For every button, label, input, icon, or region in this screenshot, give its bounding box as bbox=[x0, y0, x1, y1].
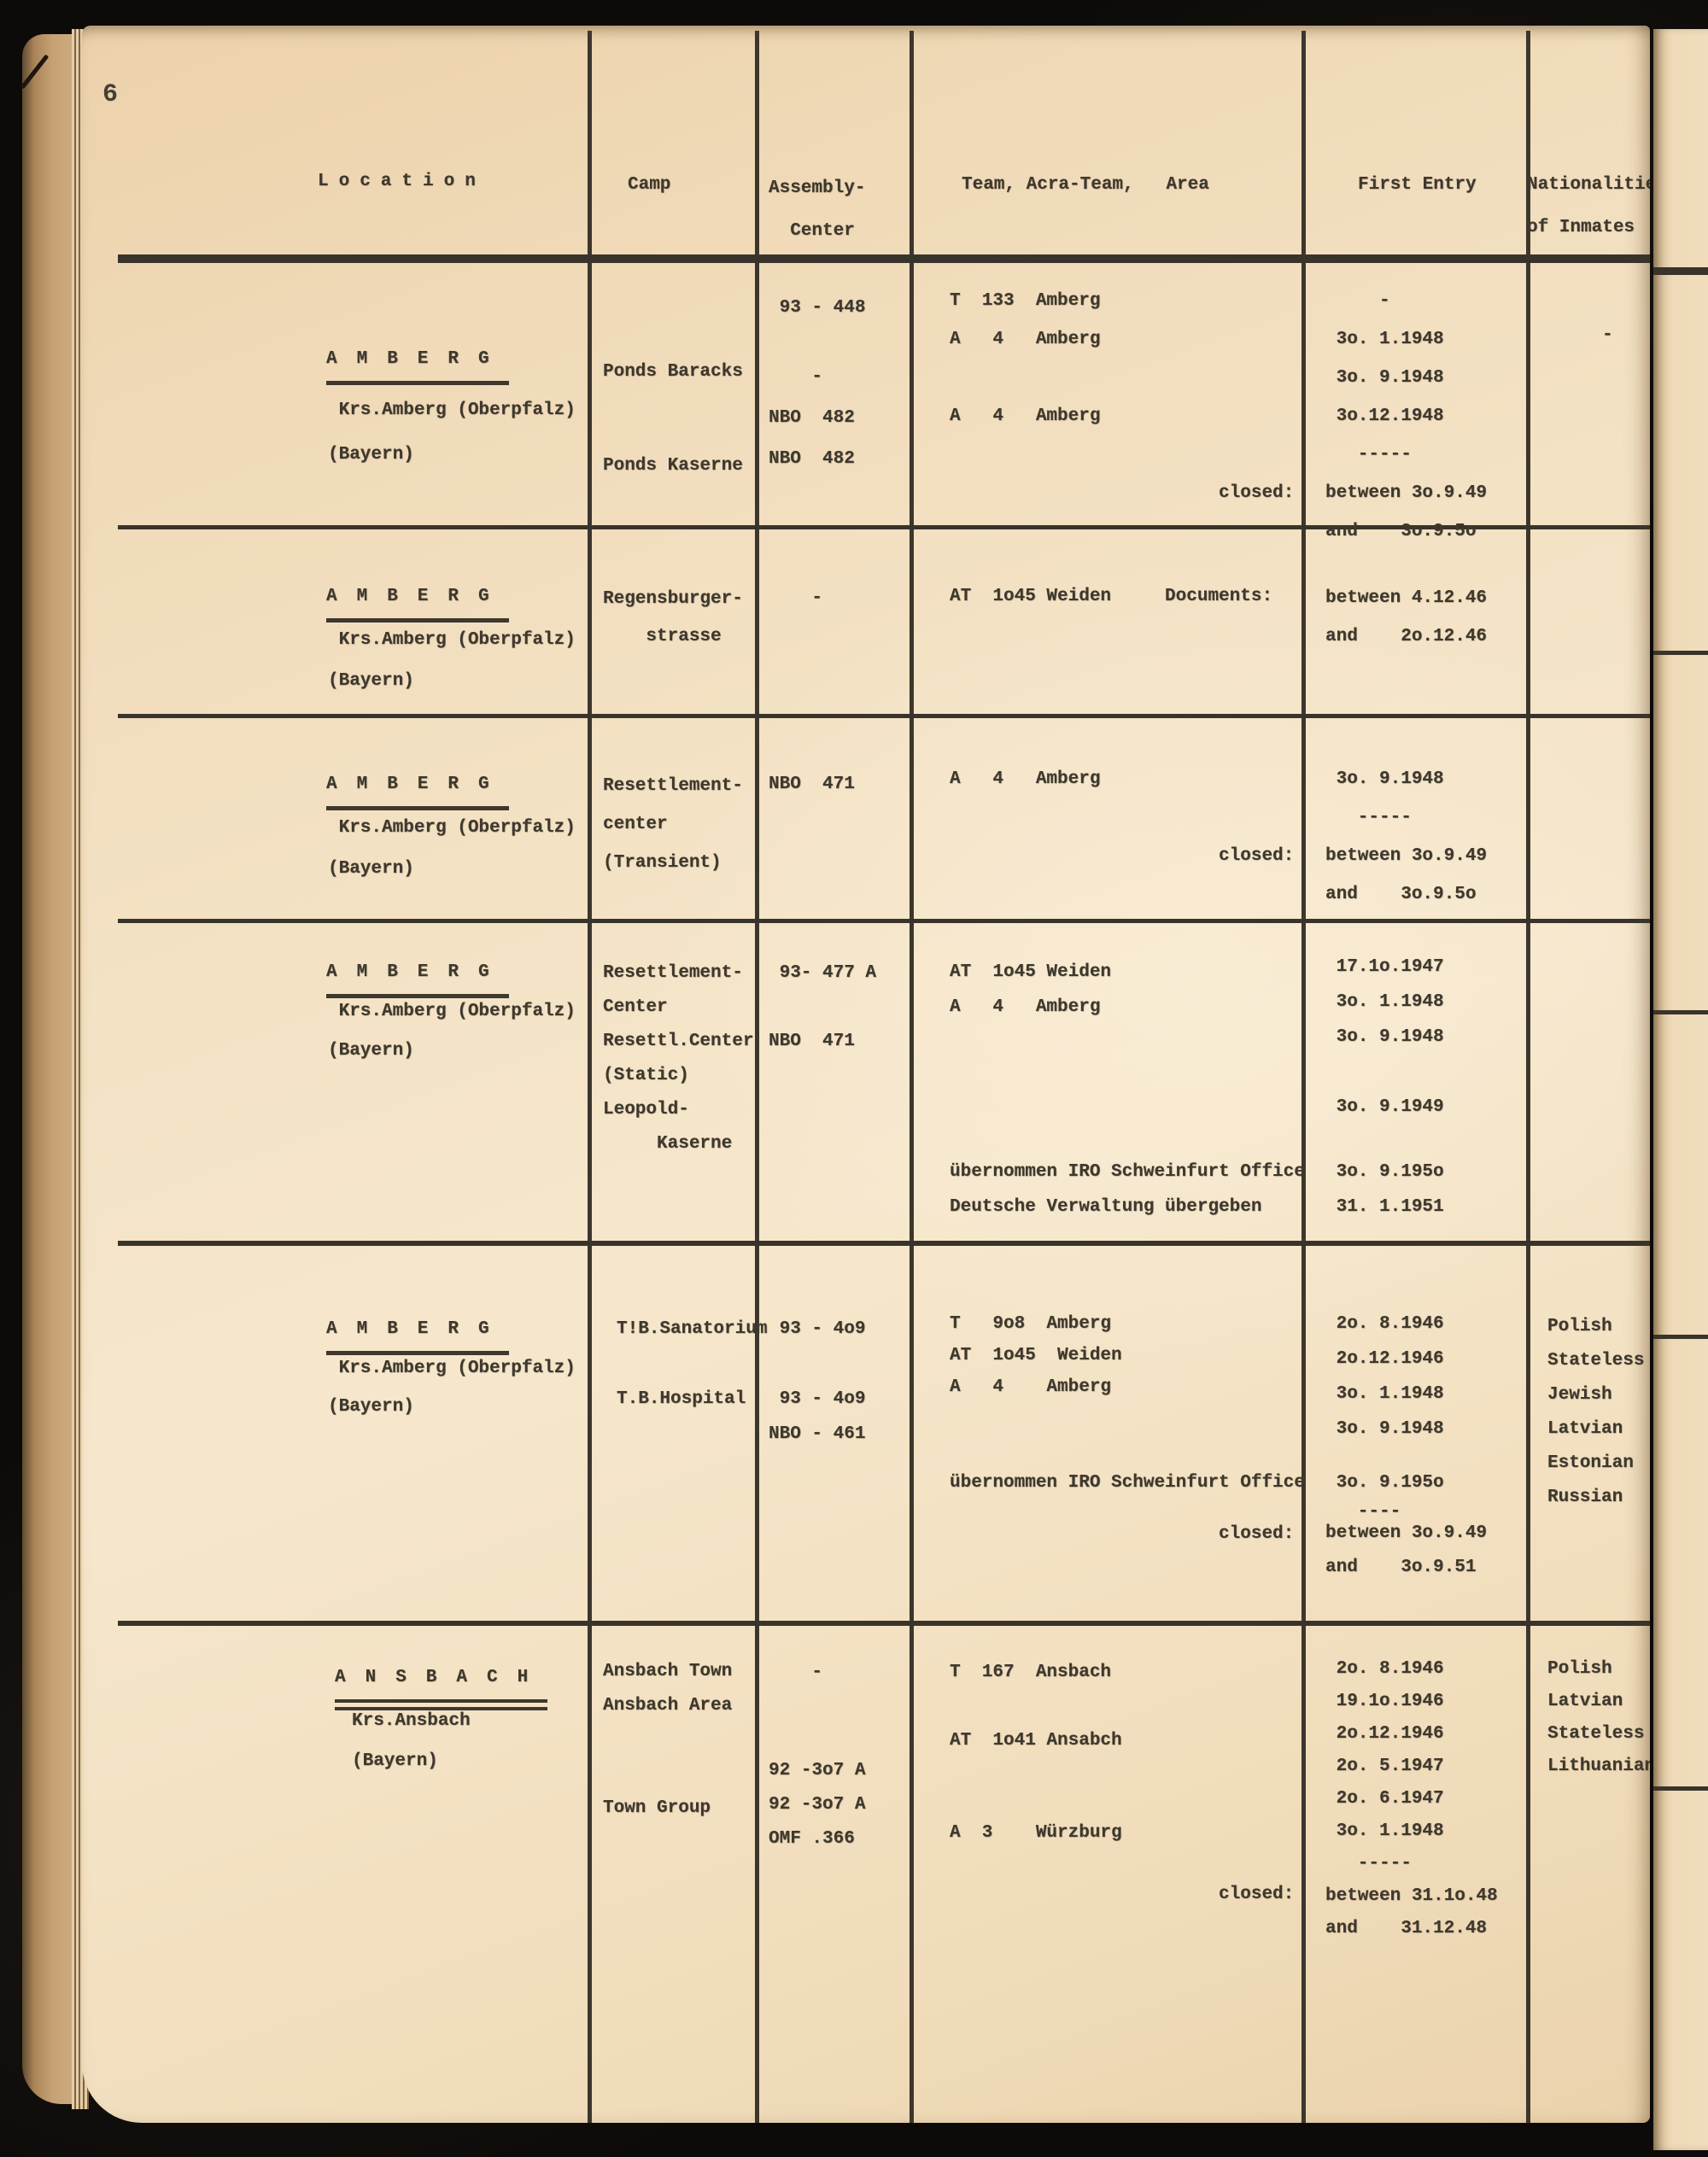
adjacent-page-rule-1 bbox=[1653, 267, 1708, 275]
row6-team-a3: A 3 Würzburg bbox=[950, 1815, 1122, 1851]
row1-assembly-b: - NBO 482 NBO 482 bbox=[769, 357, 855, 480]
row2-location-town-text: AMBERG bbox=[326, 579, 509, 623]
row5-team: T 9o8 Amberg AT 1o45 Weiden A 4 Amberg bbox=[950, 1308, 1122, 1403]
row1-location-town-text: AMBERG bbox=[326, 342, 509, 385]
page-number: 6 bbox=[102, 80, 118, 109]
row5-assembly: 93 - 4o9 93 - 4o9 NBO - 461 bbox=[769, 1312, 865, 1452]
header-rule bbox=[118, 254, 1650, 263]
row5-nationalities: Polish Stateless Jewish Latvian Estonian… bbox=[1547, 1310, 1644, 1515]
row3-first-entry: 3o. 9.1948 ----- between 3o.9.49 and 3o.… bbox=[1325, 760, 1487, 914]
column-rule-3 bbox=[910, 31, 914, 2123]
adjacent-page-rule-4 bbox=[1653, 1335, 1708, 1339]
row6-camp: Ansbach Town Ansbach Area Town Group bbox=[603, 1655, 732, 1826]
row1-location-town: AMBERG bbox=[326, 342, 509, 385]
row-separator-2 bbox=[118, 714, 1650, 718]
row1-team: T 133 Amberg A 4 Amberg A 4 Amberg close… bbox=[950, 282, 1294, 512]
row5-location-district: Krs.Amberg (Oberpfalz) (Bayern) bbox=[328, 1349, 576, 1426]
adjacent-page-sliver bbox=[1653, 29, 1708, 2150]
row4-team: AT 1o45 Weiden A 4 Amberg bbox=[950, 955, 1111, 1025]
header-nationalities-of-inmates: Nationalities of Inmates bbox=[1527, 164, 1650, 249]
row6-team-closed: closed: bbox=[950, 1877, 1294, 1913]
adjacent-page-rule-2 bbox=[1653, 651, 1708, 655]
row6-assembly-a: - bbox=[769, 1655, 822, 1691]
row6-location-district: Krs.Ansbach (Bayern) bbox=[352, 1701, 471, 1781]
row4-assembly: 93- 477 A NBO 471 bbox=[769, 956, 876, 1059]
row1-camp: Ponds Baracks Ponds Kaserne bbox=[603, 348, 743, 489]
row4-camp: Resettlement- Center Resettl.Center (Sta… bbox=[603, 956, 753, 1161]
row5-team-transfer: übernommen IRO Schweinfurt Office bbox=[950, 1465, 1305, 1501]
row6-nationalities: Polish Latvian Stateless Lithuanian bbox=[1547, 1653, 1650, 1783]
row6-assembly-b: 92 -3o7 A 92 -3o7 A OMF .366 bbox=[769, 1754, 865, 1856]
row3-location-town: AMBERG bbox=[326, 767, 509, 810]
header-team-acra-team-area: Team, Acra-Team, Area bbox=[962, 167, 1209, 203]
scanned-book-photo: { "page_number": "6", "colors": { "backg… bbox=[0, 0, 1708, 2157]
adjacent-page-rule-5 bbox=[1653, 1786, 1708, 1791]
column-rule-2 bbox=[755, 31, 759, 2123]
row1-location-district: Krs.Amberg (Oberpfalz) (Bayern) bbox=[328, 389, 576, 477]
row2-first-entry: between 4.12.46 and 2o.12.46 bbox=[1325, 579, 1487, 656]
header-assembly-center: Assembly- Center bbox=[769, 167, 865, 253]
row4-first-entry: 17.1o.1947 3o. 1.1948 3o. 9.1948 3o. 9.1… bbox=[1325, 950, 1444, 1125]
header-first-entry: First Entry bbox=[1358, 167, 1477, 203]
row-separator-5 bbox=[118, 1621, 1650, 1626]
row1-assembly-a: 93 - 448 bbox=[769, 290, 865, 326]
row2-team: AT 1o45 Weiden Documents: bbox=[950, 579, 1272, 615]
column-rule-1 bbox=[588, 31, 592, 2123]
row4-first-entry-late: 3o. 9.195o 31. 1.1951 bbox=[1325, 1154, 1444, 1225]
row2-camp: Regensburger- strasse bbox=[603, 581, 743, 656]
row6-team-at1041: AT 1o41 Ansabch bbox=[950, 1723, 1122, 1759]
row-separator-3 bbox=[118, 919, 1650, 923]
header-camp: Camp bbox=[628, 167, 670, 203]
row3-location-district: Krs.Amberg (Oberpfalz) (Bayern) bbox=[328, 808, 576, 890]
row3-team: A 4 Amberg closed: bbox=[950, 760, 1294, 875]
row-separator-4 bbox=[118, 1241, 1650, 1246]
header-location: Location bbox=[318, 164, 486, 200]
row6-first-entry: 2o. 8.1946 19.1o.1946 2o.12.1946 2o. 5.1… bbox=[1325, 1653, 1498, 1945]
row2-assembly: - bbox=[769, 581, 822, 617]
document-page: 6 LocationCampAssembly- CenterTeam, Acra… bbox=[82, 26, 1650, 2123]
row6-team-t167: T 167 Ansbach bbox=[950, 1655, 1111, 1691]
adjacent-page-rule-3 bbox=[1653, 1010, 1708, 1014]
column-rule-4 bbox=[1301, 31, 1306, 2123]
row5-camp: T!B.Sanatorium T.B.Hospital bbox=[617, 1312, 767, 1417]
row3-assembly: NBO 471 bbox=[769, 767, 855, 803]
row1-nationalities: - bbox=[1602, 318, 1613, 354]
row5-team-closed: closed: bbox=[950, 1517, 1294, 1552]
row4-location-district: Krs.Amberg (Oberpfalz) (Bayern) bbox=[328, 992, 576, 1071]
row5-first-entry-closed: between 3o.9.49 and 3o.9.51 bbox=[1325, 1517, 1487, 1585]
row2-location-town: AMBERG bbox=[326, 579, 509, 623]
column-rule-5 bbox=[1526, 31, 1530, 2123]
row4-team-transfer: übernommen IRO Schweinfurt Office Deutsc… bbox=[950, 1154, 1305, 1225]
row1-first-entry: - 3o. 1.1948 3o. 9.1948 3o.12.1948 -----… bbox=[1325, 282, 1487, 551]
row5-first-entry: 2o. 8.1946 2o.12.1946 3o. 1.1948 3o. 9.1… bbox=[1325, 1306, 1444, 1447]
row2-location-district: Krs.Amberg (Oberpfalz) (Bayern) bbox=[328, 620, 576, 702]
row3-location-town-text: AMBERG bbox=[326, 767, 509, 810]
row3-camp: Resettlement- center (Transient) bbox=[603, 767, 743, 882]
